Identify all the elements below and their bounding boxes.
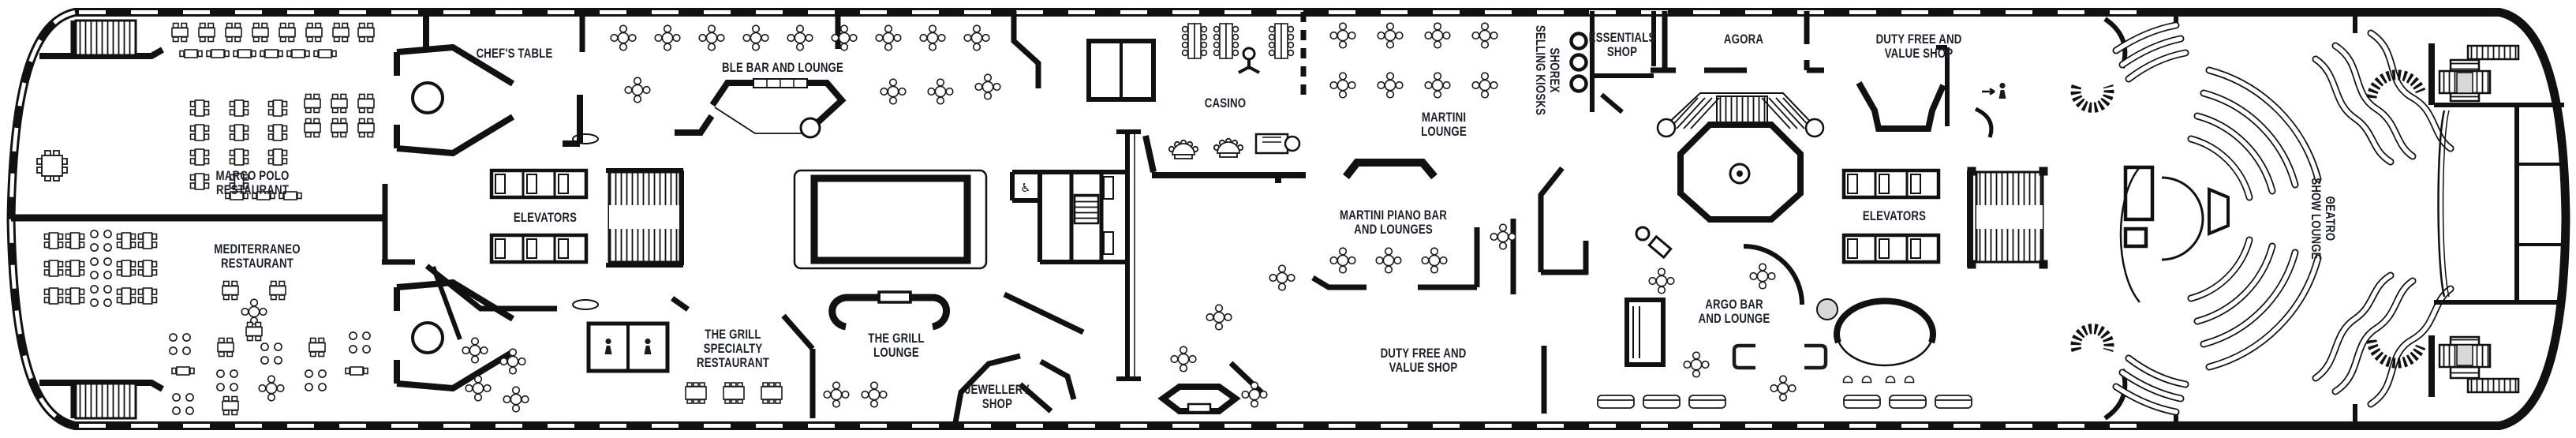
agora-grand-staircase [1658,93,1823,219]
room-label-marco-polo-restaurant: MARCO POLO RESTAURANT [216,169,290,197]
casino-structures [1014,11,1306,183]
casino-gaming-tables [1169,139,1243,159]
grill-restaurant-structure [672,170,986,418]
room-label-chefs-table: CHEF'S TABLE [477,47,553,61]
essentials-shop-walls [1592,11,1654,112]
argo-bar-structures [1627,227,1933,365]
room-label-jewellery-shop: JEWELLERY SHOP [965,383,1030,411]
forward-staircase [606,170,683,265]
room-label-grill-specialty-restaurant: THE GRILL SPECIALTY RESTAURANT [697,328,769,370]
shorex-kiosks [1572,34,1587,92]
room-label-martini-piano-bar: MARTINI PIANO BAR AND LOUNGES [1340,208,1447,237]
teatro-seating-rows [2116,25,2451,412]
chefs-table-booths [397,47,513,388]
female-restroom-icon [645,339,652,354]
wheelchair-accessible-icon: ♿ [1020,181,1030,195]
ble-bar-counter [563,79,842,309]
stern-stairs-backstage [2428,43,2566,397]
room-label-martini-lounge: MARTINI LOUNGE [1421,110,1467,139]
grill-lounge-bar [832,292,947,327]
room-label-elevators-forward: ELEVATORS [514,211,577,225]
room-label-essentials-shop: ESSENTIALS SHOP [1589,31,1656,59]
room-label-duty-free-midship: DUTY FREE AND VALUE SHOP [1381,346,1467,375]
aft-staircase [1968,167,2047,268]
duty-free-shopper-icon [1982,83,2006,99]
casino-slot-machines [1183,24,1294,58]
room-label-argo-bar-and-lounge: ARGO BAR AND LOUNGE [1699,298,1770,326]
room-label-shorex-selling-kiosks: SHOREX SELLING KIOSKS [1533,25,1561,115]
male-restroom-icon [605,339,612,354]
duty-free-aft-structures [1859,47,1991,137]
argo-bar-seating [1598,264,1972,408]
forward-restrooms [589,324,667,371]
room-label-duty-free-aft: DUTY FREE AND VALUE SHOP [1876,32,1962,61]
duty-free-midship-counter [1163,387,1236,412]
room-label-teatro-show-lounge: ΘEATRO SHOW LOUNGE [2309,178,2337,259]
deck-plan: ♿ [0,0,2576,438]
room-label-grill-lounge: THE GRILL LOUNGE [868,331,924,360]
room-label-elevators-aft: ELEVATORS [1863,209,1926,223]
teatro-stage [2121,167,2228,302]
grill-tables [686,382,887,407]
deck-plan-drawing: ♿ [0,0,2576,438]
room-label-agora: AGORA [1724,32,1763,47]
room-label-casino: CASINO [1205,96,1247,110]
room-label-mediterraneo-restaurant: MEDITERRANEO RESTAURANT [214,242,300,271]
midship-service-block [1004,132,1141,411]
room-label-ble-bar-and-lounge: BLE BAR AND LOUNGE [722,61,843,75]
